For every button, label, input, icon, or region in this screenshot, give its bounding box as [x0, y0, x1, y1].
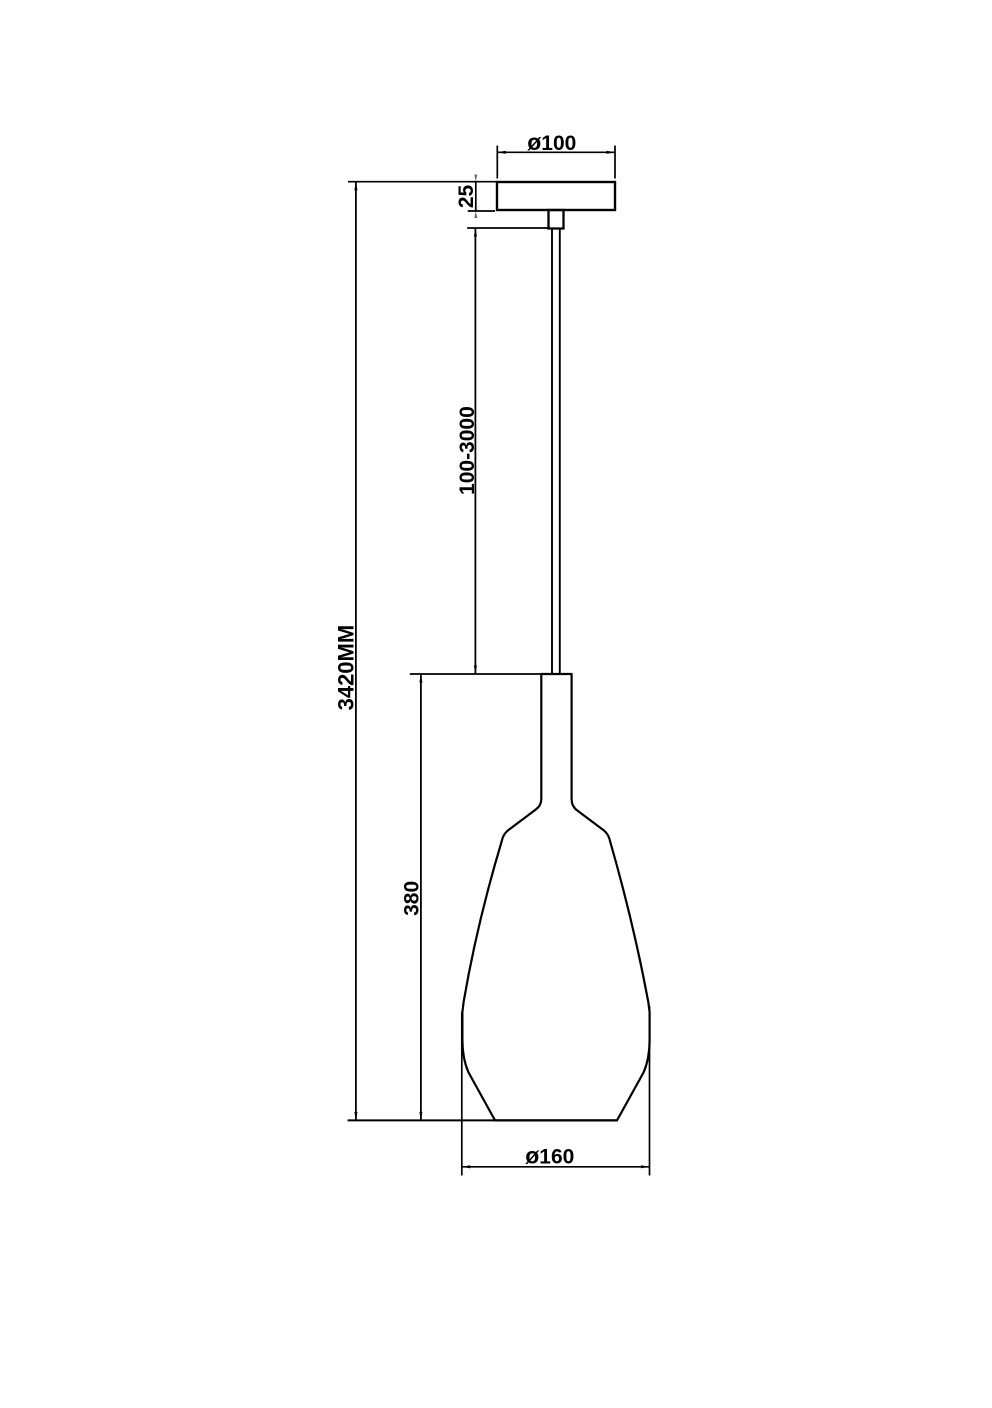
svg-text:ø100: ø100 — [527, 129, 576, 155]
svg-text:ø160: ø160 — [525, 1143, 574, 1169]
svg-text:100-3000: 100-3000 — [456, 406, 479, 495]
svg-text:380: 380 — [401, 881, 424, 916]
svg-text:3420MM: 3420MM — [334, 625, 359, 711]
svg-text:25: 25 — [455, 185, 478, 209]
